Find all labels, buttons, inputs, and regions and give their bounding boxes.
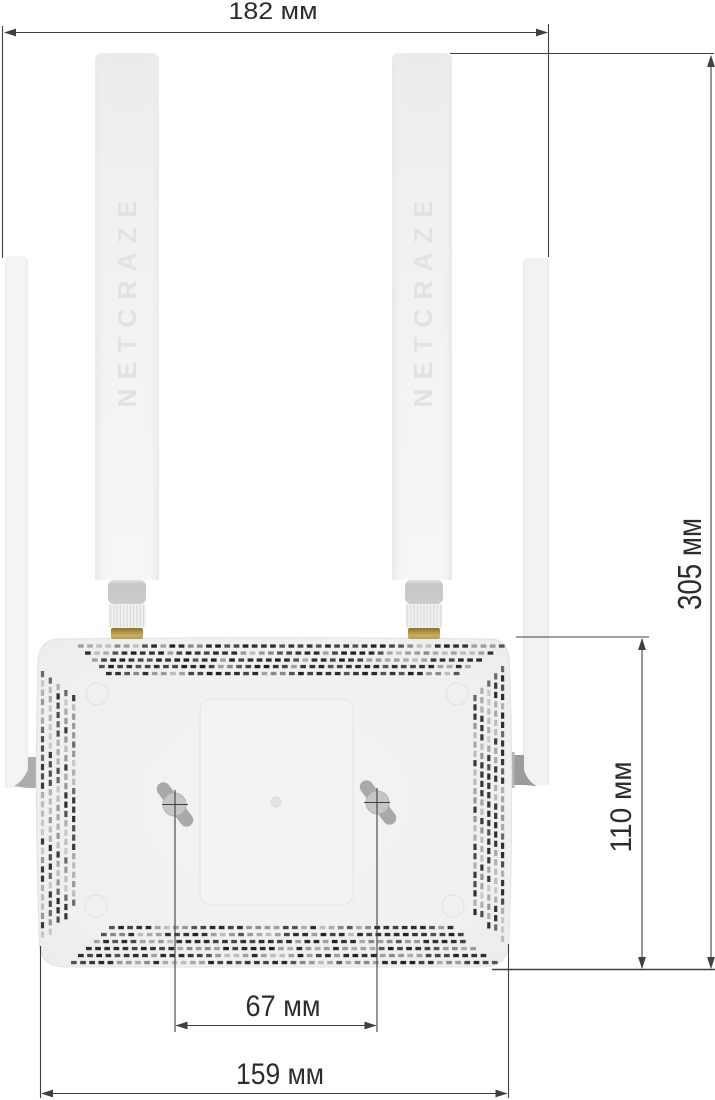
svg-text:182 мм: 182 мм	[229, 0, 318, 25]
svg-text:67 мм: 67 мм	[246, 990, 321, 1023]
svg-text:159 мм: 159 мм	[236, 1058, 324, 1091]
svg-text:305 мм: 305 мм	[672, 518, 709, 610]
svg-text:110 мм: 110 мм	[605, 762, 638, 853]
